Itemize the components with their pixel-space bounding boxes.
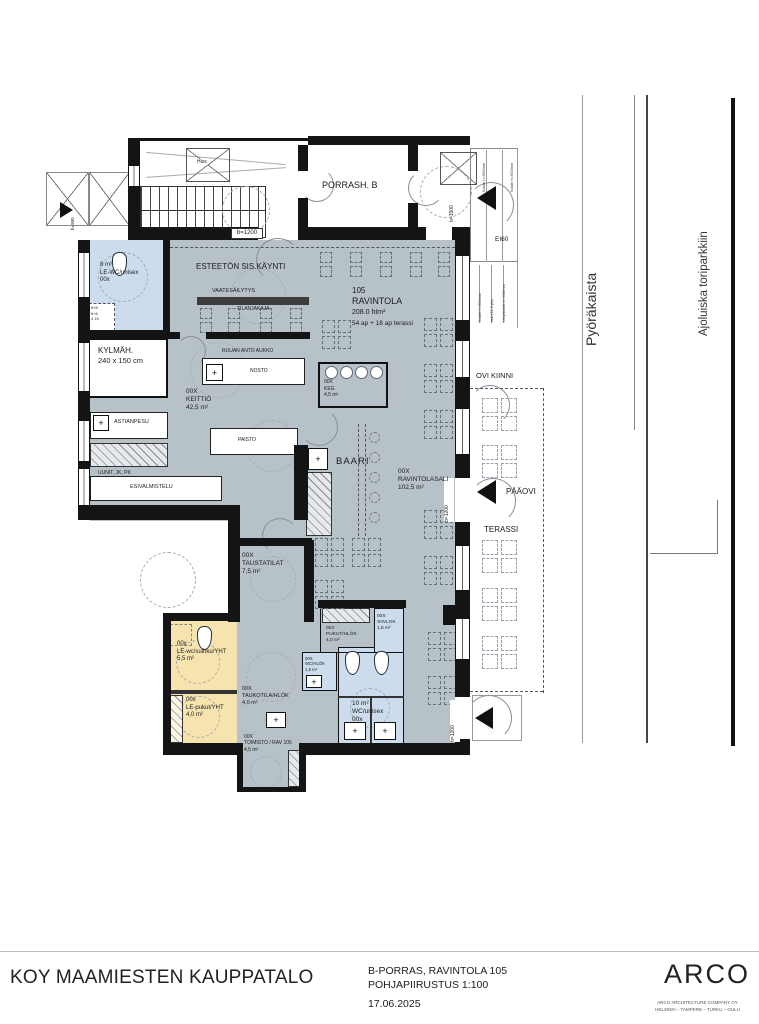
room-number: 00X (324, 379, 333, 385)
window (129, 165, 139, 187)
label-space-divider: TILANJAKAJA (237, 306, 270, 312)
main-entrance-arrow-icon (477, 480, 496, 504)
table-group (315, 538, 344, 567)
table-group (322, 320, 351, 349)
room-size: 240 x 150 cm (98, 356, 143, 365)
lift-symbol: + (206, 364, 223, 381)
wall (300, 227, 426, 240)
room-label-le-wc: 8 m² LE-WC/unisex 00x (100, 262, 138, 285)
wall (294, 445, 308, 520)
door-width-label: b=1200 (450, 700, 460, 742)
bar-stool (369, 432, 380, 443)
label-terrace: TERASSI (484, 525, 518, 535)
door-arc (300, 408, 338, 446)
wall-pier (443, 605, 455, 625)
drawing-date: 17.06.2025 (368, 998, 421, 1011)
label-prep: ESIVALMISTELU (130, 484, 173, 491)
stair-landing-line (140, 210, 266, 211)
canopy-dashed-line (170, 247, 460, 248)
room-name: LE-wc/suihku/YHT (177, 649, 226, 655)
wall (237, 743, 243, 792)
coat-rack-shelf (197, 297, 309, 305)
drawing-scale: POHJAPIIRUSTUS 1:100 (368, 979, 488, 991)
site-line (646, 95, 648, 743)
company-address: ARCO ARCHITECTURE COMPANY OY HELSINKI – … (640, 1000, 755, 1014)
keg-symbol (355, 366, 368, 379)
bar-stool (369, 452, 380, 463)
site-ramp-mark (650, 500, 718, 554)
terrace-boundary (470, 388, 543, 389)
railing-line (517, 148, 518, 328)
room-number: 00X (326, 626, 335, 631)
room-number: 00X (305, 656, 313, 661)
room-area: 4,0 m² (242, 700, 258, 706)
room-number: 00x (186, 697, 196, 703)
entrance-arrow-icon (475, 707, 493, 729)
room-name: KEG (324, 386, 335, 392)
room-number: 00x (100, 277, 110, 283)
room-number: 00X (186, 388, 198, 395)
door-arc (262, 518, 298, 554)
room-number: 00X (242, 686, 252, 692)
exterior-canopy (89, 172, 130, 226)
room-area: 1,5 m² (377, 626, 391, 631)
partition (168, 690, 237, 694)
room-area: 4,0 m² (326, 638, 340, 643)
fire-rating-label: EI60 (495, 236, 508, 244)
table-group (424, 410, 453, 439)
wall (88, 505, 240, 520)
room-number: 00X (398, 468, 410, 475)
project-title: KOY MAAMIESTEN KAUPPATALO (10, 966, 313, 990)
room-area: 7,5 m² (242, 568, 260, 575)
room-label-break-room: 00X TAUKOTILA/HLÖK 4,0 m² (242, 686, 289, 707)
room-capacity: 54 ap + 18 ap terassi (352, 320, 413, 327)
street-label-bike-lane: Pyöräkaista (583, 250, 600, 346)
room-label-cold-room: KYLMÄH. 240 x 150 cm (98, 346, 143, 366)
window (79, 252, 89, 298)
room-area: 1,5 m² (305, 667, 317, 672)
terrace-table-group (482, 540, 517, 573)
door-opening-main (455, 478, 470, 522)
table-group (438, 252, 450, 277)
room-area: 5,5 m² (177, 656, 194, 662)
room-name: TAUKOTILA/HLÖK (242, 693, 289, 699)
fixture-note-line: 4 15 (91, 316, 99, 321)
room-area: 102,5 m² (398, 484, 424, 491)
wall (163, 743, 243, 755)
bench (170, 695, 183, 743)
bar-equipment: + (308, 448, 328, 470)
drawing-name: B-PORRAS, RAVINTOLA 105 (368, 965, 507, 977)
door-width-label: b=900 (70, 194, 80, 230)
drawing-title: B-PORRAS, RAVINTOLA 105 POHJAPIIRUSTUS 1… (368, 964, 507, 992)
wall (128, 138, 318, 141)
window (456, 618, 469, 660)
site-line (582, 95, 583, 743)
wall (163, 618, 171, 745)
wall (299, 743, 306, 792)
room-name: KYLMÄH. (98, 346, 133, 355)
room-name: LE-WC/unisex (100, 270, 138, 276)
room-name: TAUSTATILAT (242, 560, 283, 567)
terrace-boundary (543, 388, 544, 693)
wall (237, 787, 306, 792)
site-boundary-line (731, 98, 735, 746)
wall (304, 540, 314, 622)
door-width-label: b=1500 (449, 180, 459, 222)
site-line (634, 95, 635, 430)
terrace-table-group (482, 398, 517, 431)
keg-symbol (340, 366, 353, 379)
wall (318, 600, 406, 608)
room-area: 4,0 m² (186, 712, 203, 718)
room-name: WC/unisex (352, 708, 383, 715)
floor-plan-sheet: Pyöräkaista Ajoluiska toriparkkiin b=120… (0, 0, 759, 1024)
wall (230, 538, 312, 546)
room-number: 00X (242, 552, 254, 559)
room-name: WC/HLÖK (305, 661, 325, 666)
room-area: 8 m² (100, 262, 112, 268)
wall (305, 743, 470, 755)
bar-stool (369, 472, 380, 483)
room-name: RAVINTOLASALI (398, 476, 448, 483)
break-room-table: + (266, 712, 286, 728)
toilet-symbol: + (344, 722, 366, 740)
ovens-fridge-freezer (90, 443, 168, 467)
table-group (352, 538, 381, 567)
keg-symbol (370, 366, 383, 379)
wall (163, 613, 240, 621)
terrace-table-group (482, 588, 517, 621)
label-serving-hatch: RUUAN ANTO AUKKO (222, 348, 273, 354)
room-area: 4,5 m² (244, 747, 258, 753)
label-door-closed: OVI KIINNI (476, 371, 513, 380)
bar-front-line (358, 424, 359, 536)
toilet-symbol: + (374, 722, 396, 740)
railing-note: Kaide h=900mm (477, 268, 485, 322)
window (456, 255, 469, 321)
bar-stool (369, 512, 380, 523)
room-label-kitchen: 00X KEITTIÖ 42,5 m² (186, 388, 211, 412)
fixture-note: 8+8 6+6 4 15 (89, 303, 115, 331)
room-label-back-space: 00X TAUSTATILAT 7,5 m² (242, 552, 283, 576)
label-main-door: PÄÄOVI (506, 487, 536, 497)
terrace-boundary (470, 691, 543, 692)
window (79, 420, 89, 462)
label-ovens: UUNIT, JK, PK (98, 470, 131, 476)
terrace-table-group (482, 445, 517, 478)
turning-circle (140, 552, 196, 608)
wall (228, 505, 240, 622)
label-lift: NOSTO (250, 368, 268, 374)
room-number: 00x (352, 716, 362, 723)
room-area: 10 m² (352, 700, 369, 707)
railing-note: Kaide h=900mm (481, 152, 489, 192)
wall (298, 145, 308, 171)
room-number: 00X (377, 614, 386, 619)
room-area: 42,5 m² (186, 404, 208, 411)
room-number: 00x (177, 641, 187, 647)
table-group (424, 364, 453, 393)
company-cities: HELSINKI – TAMPERE – TURKU – OULU (655, 1007, 740, 1012)
table-group (290, 308, 302, 333)
window (79, 468, 89, 506)
sink-symbol: + (93, 415, 109, 431)
room-name: LE-pukut/YHT (186, 705, 224, 711)
room-label-dining-hall: 00X RAVINTOLASALI 102,5 m² (398, 468, 448, 492)
room-label-keg: 00X KEG 4,5 m² (324, 379, 338, 399)
table-group (350, 252, 362, 277)
room-label-accessible-entry: ESTEETÖN SIS.KÄYNTI (196, 262, 285, 272)
table-group (320, 252, 332, 277)
company-name: ARCO ARCHITECTURE COMPANY OY (657, 1000, 738, 1005)
wall (163, 240, 170, 335)
title-block-divider (0, 951, 759, 952)
room-number: 105 (352, 286, 365, 295)
elevator (186, 148, 230, 182)
room-name: RAVINTOLA (352, 296, 402, 306)
railing-note: Umpikaide h=900mm (501, 268, 509, 322)
room-label-bar: BAARI (336, 456, 370, 468)
wall (408, 145, 418, 171)
room-number: 00X (244, 734, 253, 740)
turning-circle (250, 756, 282, 788)
label-dishwashing: ASTIANPESU (114, 419, 149, 426)
room-label-staff-changing: 00X PUKUT/HLÖK 4,0 m² (326, 626, 357, 644)
wc-symbol: + (306, 675, 322, 688)
wall (452, 227, 470, 240)
label-cooking: PAISTO (238, 437, 256, 443)
room-name: TOIMISTO / RAV 105 (244, 740, 292, 746)
keg-symbol (325, 366, 338, 379)
wall (206, 332, 310, 339)
lockers (322, 608, 370, 623)
label-coat-storage: VAATESÄILYTYS (212, 288, 255, 295)
table-group (410, 252, 422, 277)
table-group (424, 318, 453, 347)
railing-note: Kaide h=900mm (509, 152, 517, 192)
table-group (428, 632, 457, 661)
room-area: 208.0 htm² (352, 309, 385, 316)
window (456, 340, 469, 378)
room-label-office: 00X TOIMISTO / RAV 105 4,5 m² (244, 734, 292, 753)
room-label-wc-unisex: 10 m² WC/unisex 00x (352, 700, 383, 724)
street-label-ramp: Ajoluiska toriparkkiin (697, 200, 712, 336)
fixture-note-line: 6+6 (91, 311, 98, 316)
fixture-note-line: 8+8 (91, 305, 98, 310)
window (456, 545, 469, 591)
room-label-stairwell: PORRASH. B (322, 180, 378, 191)
wc-stall-partition (338, 696, 404, 698)
window (79, 342, 89, 392)
room-area: 4,5 m² (324, 392, 338, 398)
table-group (380, 252, 392, 277)
room-name: PUKUT/HLÖK (326, 632, 357, 637)
room-name: SIIVLOK (377, 620, 396, 625)
elevator-label: Hiss (196, 159, 208, 165)
terrace-table-group (482, 636, 517, 669)
table-group (424, 556, 453, 585)
window (456, 408, 469, 455)
bar-stool (369, 492, 380, 503)
room-label-le-changing: 00x LE-pukut/YHT 4,0 m² (186, 697, 224, 720)
bar-front-line (365, 424, 366, 536)
door-width-label: b=1200 (231, 228, 263, 239)
railing-note: lasi (11,5 pk) (489, 268, 497, 322)
wall (420, 136, 470, 145)
table-group (200, 308, 212, 333)
wall (308, 136, 425, 145)
room-label-staff-wc: 00X WC/HLÖK 1,5 m² (305, 656, 325, 672)
room-label-cleaning: 00X SIIVLOK 1,5 m² (377, 614, 396, 632)
company-logo: ARCO (664, 958, 750, 992)
wall (168, 332, 180, 339)
room-name: KEITTIÖ (186, 396, 211, 403)
room-label-le-shower: 00x LE-wc/suihku/YHT 5,5 m² (177, 641, 226, 664)
room-label-restaurant: 105 RAVINTOLA 208.0 htm² 54 ap + 18 ap t… (352, 286, 413, 328)
bar-counter (306, 472, 332, 536)
wall (88, 330, 170, 338)
